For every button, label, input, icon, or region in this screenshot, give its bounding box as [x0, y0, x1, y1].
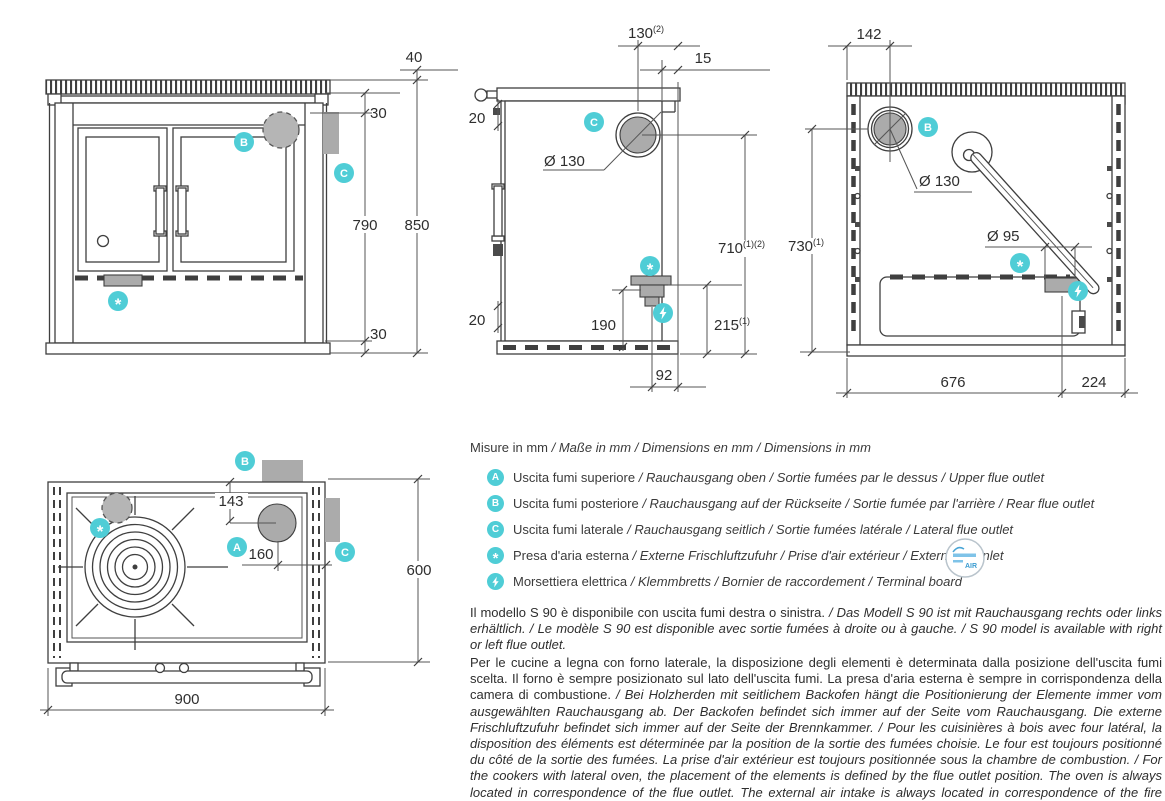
dim-worktop-overhang: 15 — [695, 50, 712, 67]
svg-text:C: C — [590, 117, 598, 129]
dim-total-height: 850 — [404, 217, 429, 234]
rear-base — [847, 345, 1125, 356]
air-system-logo: AIR — [944, 537, 986, 579]
svg-text:B: B — [241, 456, 249, 468]
dim-flue-from-side: 160 — [248, 546, 273, 563]
top-air-inlet-position — [102, 493, 132, 523]
dim-body-height: 790 — [352, 217, 377, 234]
note-flue-side-availability: Il modello S 90 è disponibile con uscita… — [470, 605, 1162, 654]
side-door-handle — [494, 186, 502, 236]
legend-item-terminal-board: Morsettiera elettrica / Klemmbretts / Bo… — [470, 573, 1164, 590]
front-rear-flue-position — [263, 112, 299, 148]
dim-bottom-inset: 20 — [469, 312, 486, 329]
svg-text:B: B — [240, 137, 248, 149]
terminal-bolt-icon — [487, 573, 504, 590]
dim-side-flue-diameter: Ø 130 — [544, 153, 585, 170]
marker-b-badge: B — [234, 132, 254, 152]
dim-width: 900 — [174, 691, 199, 708]
side-worktop — [497, 88, 680, 101]
side-base — [497, 341, 678, 354]
terminal-bolt-badge — [653, 303, 673, 323]
dim-base-gap: 30 — [370, 326, 387, 343]
front-towel-bar — [50, 96, 326, 103]
dim-depth: 600 — [406, 562, 431, 579]
legend-item-label: Presa d'aria esterna / Externe Frischluf… — [513, 548, 1004, 563]
rear-view: 142 Ø 130 730(1) Ø 95 676 224 B * — [784, 26, 1138, 398]
svg-text:*: * — [115, 295, 122, 314]
dim-flue-from-front: 143 — [218, 493, 243, 510]
svg-text:C: C — [340, 168, 348, 180]
legend: Misure in mm / Maße in mm / Dimensions e… — [470, 440, 1164, 599]
dim-air-inlet-offset: 92 — [656, 367, 673, 384]
marker-c-badge: C — [584, 112, 604, 132]
legend-item-lateral-flue-outlet: C Uscita fumi laterale / Rauchausgang se… — [470, 521, 1164, 538]
legend-item-rear-flue-outlet: B Uscita fumi posteriore / Rauchausgang … — [470, 495, 1164, 512]
legend-item-upper-flue-outlet: A Uscita fumi superiore / Rauchausgang o… — [470, 469, 1164, 486]
dim-air-inlet-height: 190 — [591, 317, 616, 334]
legend-item-external-air-inlet: * Presa d'aria esterna / Externe Frischl… — [470, 547, 1164, 564]
dim-air-inlet-from-left: 676 — [940, 374, 965, 391]
side-air-inlet-stub — [640, 285, 664, 297]
svg-text:*: * — [647, 260, 654, 279]
front-right-door — [173, 128, 294, 271]
marker-b-badge: B — [487, 495, 504, 512]
svg-text:B: B — [924, 122, 932, 134]
marker-c-badge: C — [335, 542, 355, 562]
marker-b-badge: B — [918, 117, 938, 137]
top-view: 143 160 600 900 B * A C — [40, 451, 436, 716]
front-lateral-flue-outlet — [323, 112, 339, 154]
terminal-bolt-badge — [1068, 281, 1088, 301]
top-towel-rail — [62, 671, 312, 683]
marker-air-badge: * — [487, 547, 504, 564]
note-oven-placement: Per le cucine a legna con forno laterale… — [470, 655, 1162, 801]
marker-c-badge: C — [487, 521, 504, 538]
dim-worktop-thickness: 40 — [406, 49, 423, 66]
side-rail-end — [475, 89, 487, 101]
marker-a-badge: A — [227, 537, 247, 557]
air-logo-text: AIR — [965, 563, 977, 570]
legend-item-label: Uscita fumi superiore / Rauchausgang obe… — [513, 470, 1044, 485]
dim-rear-flue-offset: 142 — [856, 26, 881, 43]
dim-rear-flue-diameter: Ø 130 — [919, 173, 960, 190]
dim-top-gap: 30 — [370, 105, 387, 122]
svg-text:*: * — [97, 522, 104, 541]
front-worktop-rail — [46, 80, 330, 94]
front-right-door-handle — [178, 188, 186, 234]
legend-title: Misure in mm / Maße in mm / Dimensions e… — [470, 440, 1164, 455]
technical-drawing-page: 40 850 30 790 30 B C * — [0, 0, 1165, 801]
svg-text:A: A — [233, 542, 241, 554]
legend-item-label: Uscita fumi posteriore / Rauchausgang au… — [513, 496, 1094, 511]
legend-item-label: Morsettiera elettrica / Klemmbretts / Bo… — [513, 574, 962, 589]
top-lateral-flue-outlet — [325, 498, 340, 542]
dim-side-flue-offset: 130(2) — [628, 24, 664, 42]
front-air-inlet — [104, 275, 142, 286]
top-rear-flue-outlet — [262, 460, 303, 482]
marker-c-badge: C — [334, 163, 354, 183]
front-view-dimensions: 40 850 30 790 30 — [310, 49, 458, 357]
dim-air-inlet-from-right: 224 — [1081, 374, 1106, 391]
front-left-door-handle — [156, 188, 164, 234]
front-thermometer-knob — [98, 236, 109, 247]
marker-b-badge: B — [235, 451, 255, 471]
front-base — [46, 343, 330, 354]
rear-worktop-rail — [847, 83, 1125, 96]
svg-text:*: * — [1017, 257, 1024, 276]
dim-air-inlet-diameter: Ø 95 — [987, 228, 1020, 245]
svg-text:C: C — [341, 547, 349, 559]
front-left-door — [78, 128, 167, 271]
marker-a-badge: A — [487, 469, 504, 486]
front-view: 40 850 30 790 30 B C * — [46, 49, 458, 357]
side-view: 130(2) 15 Ø 130 20 20 190 215(1) 710(1)(… — [469, 24, 770, 392]
dim-top-inset: 20 — [469, 110, 486, 127]
legend-item-label: Uscita fumi laterale / Rauchausgang seit… — [513, 522, 1013, 537]
